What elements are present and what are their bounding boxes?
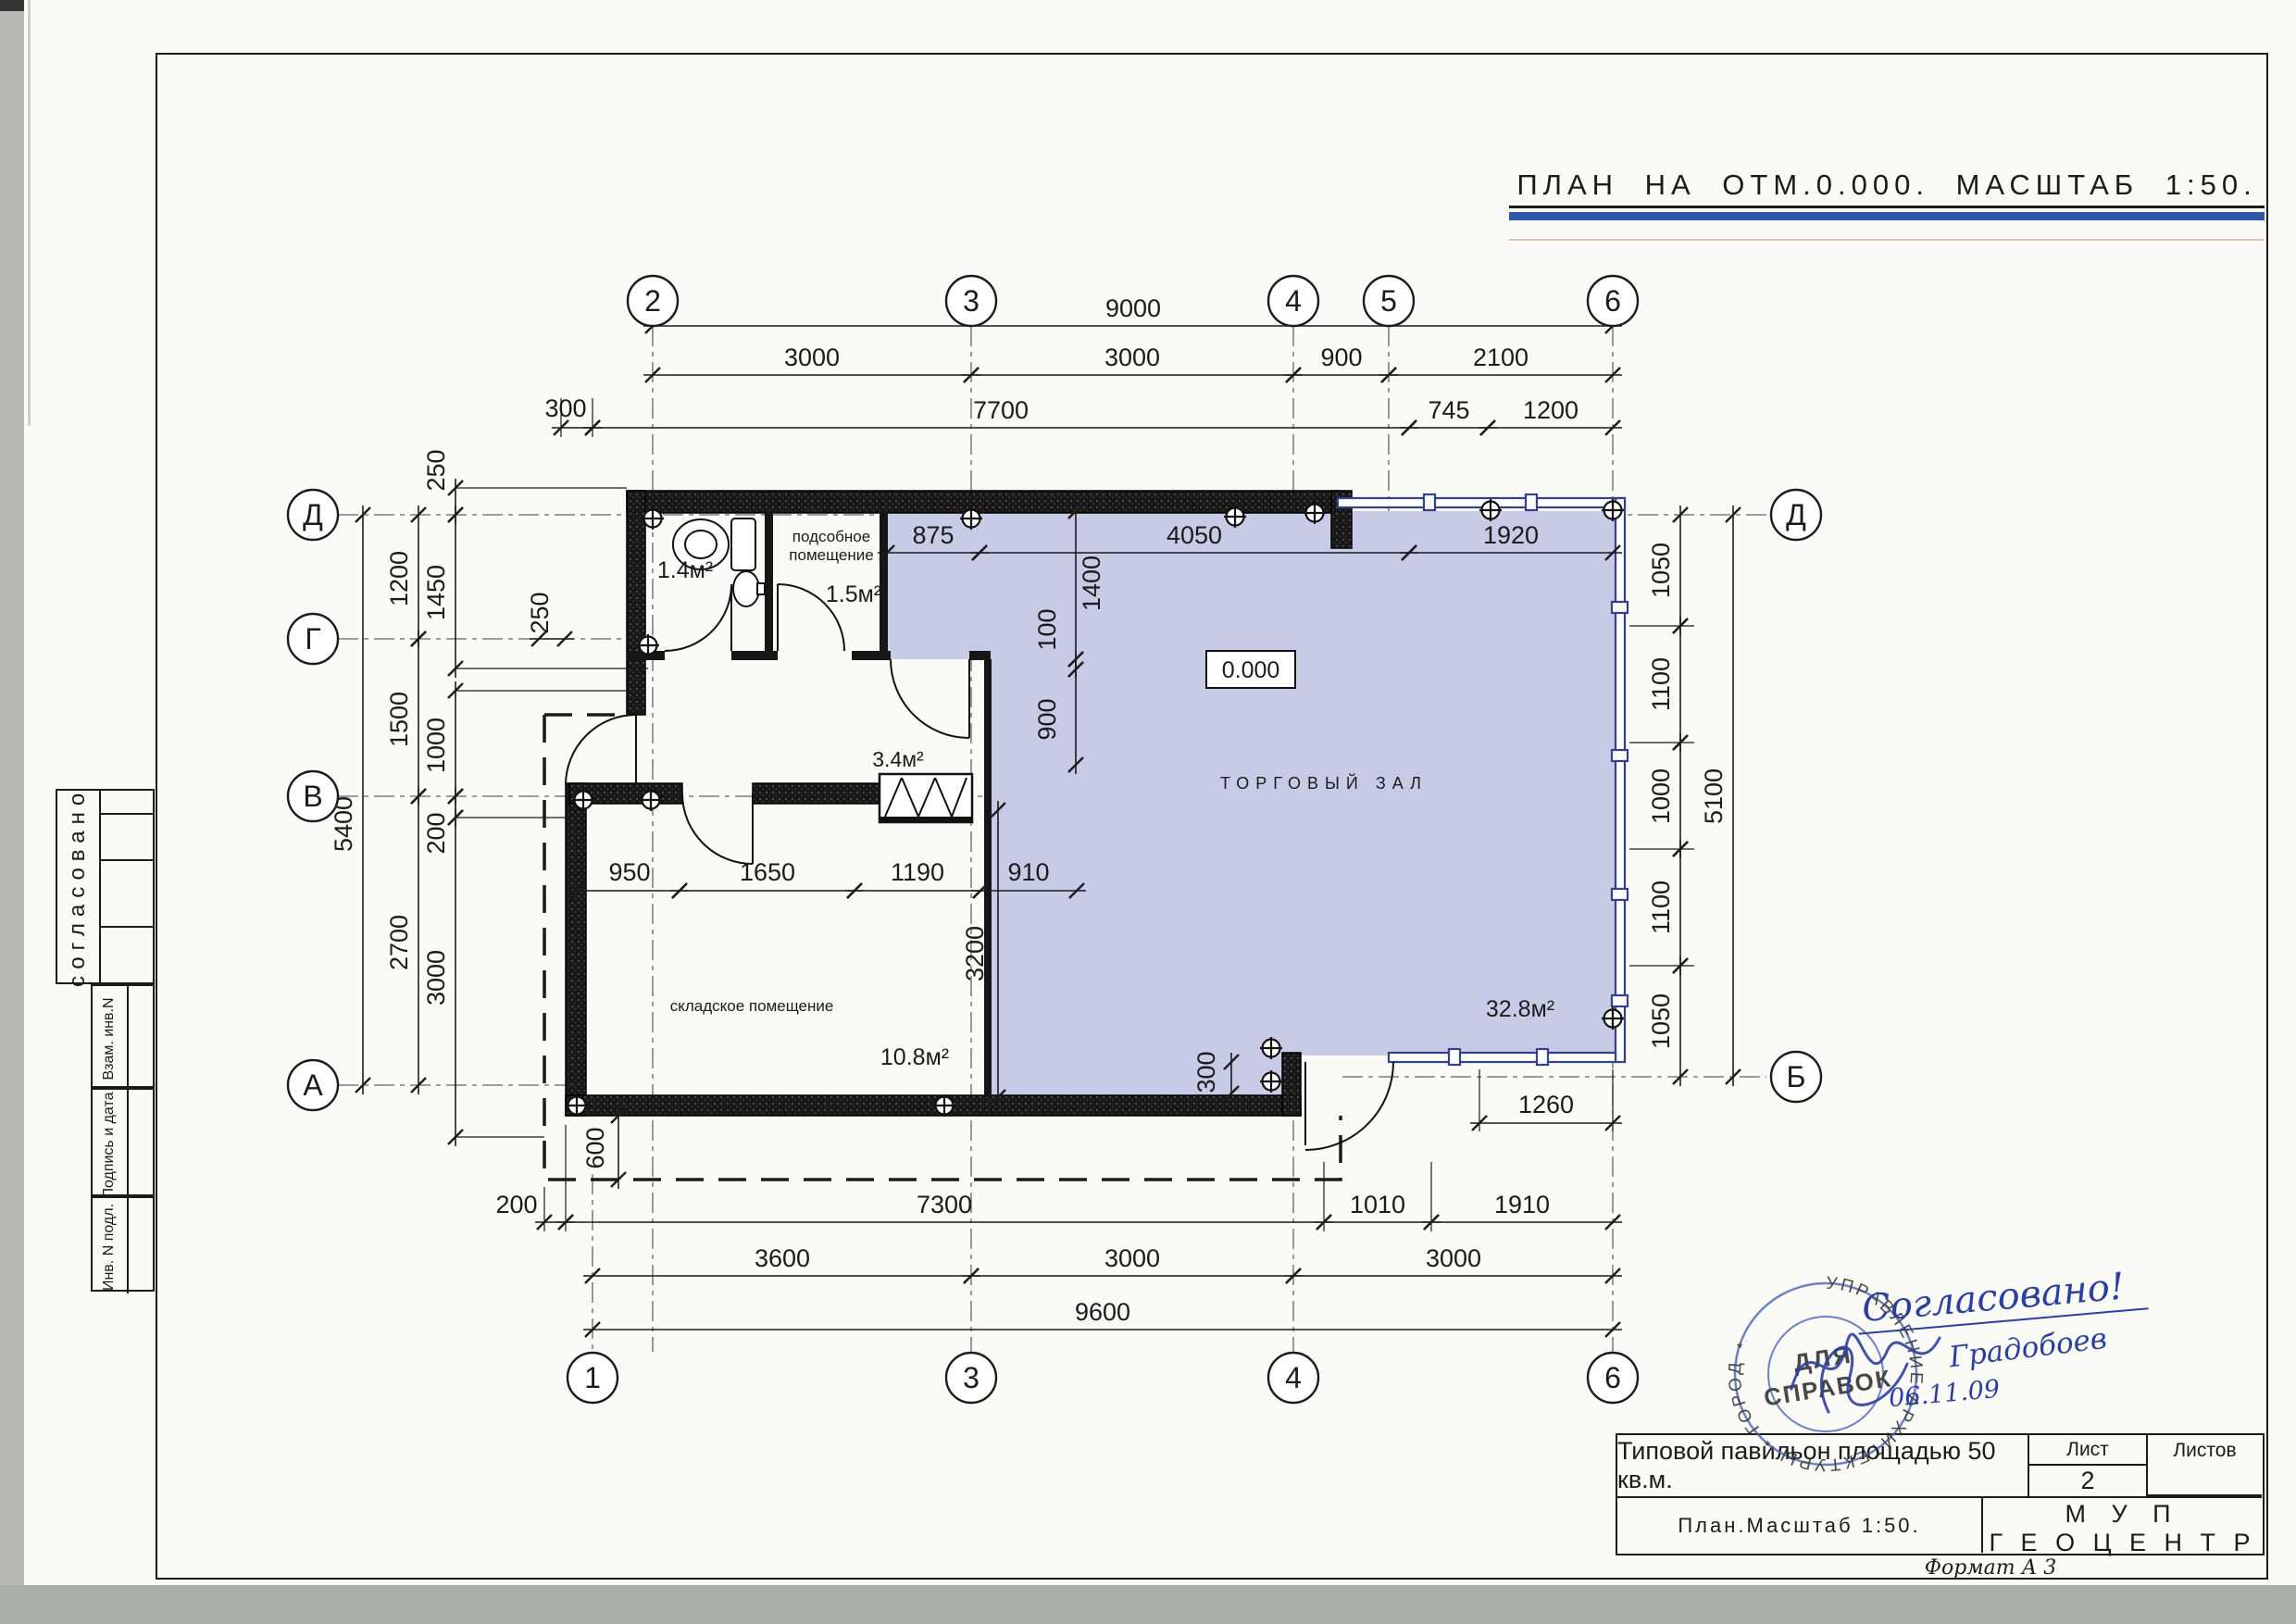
dimension-value: 1100 [1647,657,1675,711]
dimension-value: 600 [581,1127,609,1168]
axis-label: 3 [963,1361,980,1394]
dimension-value: 3000 [784,344,840,371]
shelf-niche [880,774,972,822]
axis-bubble: 6 [1588,276,1638,326]
plan-scale-label: План.Масштаб 1:50. [1678,1514,1920,1538]
axis-label: Г [305,622,320,656]
dimension-value: 1000 [1647,768,1675,824]
room-label: 1.4м² [657,557,713,583]
dimension: 5100 [1700,506,1741,1086]
dimension-value: 1650 [740,858,795,886]
dimension-value: 1000 [422,718,450,773]
sheets-label-cell: Листов [2148,1435,2262,1466]
dimension: 7300 [556,1191,1333,1230]
format-note: Формат А 3 [1889,1556,2092,1580]
dimension: 1000 [1647,733,1688,858]
axis-label: 6 [1604,284,1621,318]
dimension-value: 250 [526,592,554,633]
axis-label: Б [1787,1060,1806,1093]
dimension: 1190 [845,858,990,898]
scanned-sheet: ПЛАН НА ОТМ.0.000. МАСШТАБ 1:50. [0,0,2296,1624]
dimension-value: 875 [912,521,954,549]
sheets-count-cell [2148,1466,2262,1496]
dimension: 9000 [643,294,1622,333]
dimension: 1200 [1479,396,1622,435]
divider [101,926,155,928]
dimension-value: 7700 [973,396,1029,424]
dimension: 3000 [1284,1244,1622,1283]
organization-line2: Г Е О Ц Е Н Т Р [1983,1529,2262,1557]
room-label: 1.5м² [826,581,881,607]
dimension-value: 1050 [1647,543,1675,598]
dimension-value: 200 [495,1191,537,1218]
axis-bubble: 5 [1364,276,1414,326]
dimension-value: 300 [1192,1051,1220,1093]
dimension: 250 [526,592,574,646]
divider [99,791,101,986]
stamp-cell-inv: Инв. N подл. [91,1196,155,1292]
dimension-value: 1200 [385,551,413,606]
axis-bubble: 4 [1268,276,1318,326]
dimension-value: 250 [422,449,450,491]
room-label: ТОРГОВЫЙ ЗАЛ [1220,773,1428,793]
sheet-label: Лист [2066,1439,2109,1461]
dimension: 1100 [1647,617,1688,752]
dimension-value: 9600 [1075,1298,1130,1326]
axis-bubble: Д [1771,490,1821,540]
dimension-value: 1450 [422,565,450,620]
axis-bubble: В [288,771,338,821]
axis-label: А [303,1068,323,1102]
axis-bubble: Г [288,614,338,664]
axis-bubble: Д [288,490,338,540]
dimension-value: 1500 [385,692,413,747]
dimension-value: 9000 [1105,294,1161,322]
dimension-value: 910 [1007,858,1049,886]
dimension: 1450 [422,506,463,678]
dimension: 1200 [385,506,426,648]
dimension: 1100 [1647,840,1688,975]
axis-bubble: 6 [1588,1353,1638,1403]
dimension: 300 [544,394,602,435]
dimension: 950 [569,858,689,898]
dimension-value: 900 [1320,344,1362,371]
divider [127,1198,129,1293]
dimension: 200 [422,787,463,855]
axis-bubble: 2 [628,276,678,326]
axis-label: Д [1786,498,1806,531]
axis-label: 2 [644,284,661,318]
dimension-value: 300 [544,394,586,422]
dimension-value: 2700 [385,915,413,970]
dimension-value: 7300 [917,1191,972,1218]
dimension-value: 2100 [1473,344,1529,371]
dimension: 3000 [962,1244,1303,1283]
divider [127,1090,129,1198]
dimension: 1260 [1470,1091,1622,1131]
dimension: 1650 [670,858,864,898]
dimension-value: 3200 [961,926,989,981]
dimension-value: 1910 [1494,1191,1550,1218]
sheets-label: Листов [2173,1440,2236,1462]
stamp-cell-label: Инв. N подл. [101,1173,118,1321]
dimension-value: 950 [608,858,650,886]
organization-cell: М У П Г Е О Ц Е Н Т Р [1983,1496,2262,1555]
room-label: 0.000 [1222,657,1280,683]
axis-label: 4 [1285,284,1302,318]
dimension: 3600 [583,1244,980,1283]
dimension-value: 1010 [1350,1191,1405,1218]
axis-label: 5 [1380,284,1397,318]
dimension: 3000 [422,808,463,1146]
axis-bubble: А [288,1060,338,1110]
axis-label: Д [303,498,323,531]
dimension-value: 1050 [1647,993,1675,1049]
dimension-value: 5100 [1700,768,1728,824]
dimension: 745 [1400,396,1497,435]
dimension-value: 3000 [1104,344,1160,371]
divider [127,986,129,1090]
axis-bubble: 3 [946,276,996,326]
dimension: 9600 [583,1298,1622,1337]
dimension: 1000 [422,681,463,806]
axis-bubble: 4 [1268,1353,1318,1403]
dimension-value: 1200 [1523,396,1578,424]
dimension: 1050 [1647,506,1688,635]
divider [101,859,155,861]
dimension-value: 1100 [1647,881,1675,934]
axis-label: 6 [1604,1361,1621,1394]
dimension-value: 1260 [1518,1091,1574,1118]
dimension-value: 200 [422,812,450,854]
room-label: помещение [789,546,873,564]
axis-label: 1 [584,1361,601,1394]
room-label: 10.8м² [880,1044,949,1070]
dimension: 1010 [1315,1191,1441,1230]
dimension-value: 900 [1033,698,1061,740]
dimension: 1500 [385,630,426,806]
room-label: 32.8м² [1486,996,1554,1022]
divider [101,813,155,815]
sheet-label-cell: Лист [2029,1435,2148,1466]
signature-scribble [1778,1301,1953,1430]
dimension: 2700 [385,787,426,1094]
dimension-value: 1190 [891,858,944,886]
dimension: 600 [581,1106,626,1189]
dimension-value: 745 [1428,396,1469,424]
room-label: складское помещение [670,997,834,1015]
dimension-value: 1400 [1078,556,1105,611]
dimension-value: 4050 [1167,521,1222,549]
dimension-value: 3000 [1426,1244,1481,1272]
dimension: 1910 [1422,1191,1622,1230]
axis-bubble: Б [1771,1052,1821,1102]
dimension-value: 3600 [755,1244,810,1272]
sink-icon [733,571,765,606]
dimension: 3000 [962,344,1303,382]
approval-strip-label: согласовано [65,802,91,987]
room-label: подсобное [792,528,870,545]
axis-label: 4 [1285,1361,1302,1394]
dimension-value: 3000 [422,950,450,1006]
axis-label: 3 [963,284,980,318]
dimension-value: 3000 [1104,1244,1160,1272]
axis-label: В [303,780,322,813]
dimension-value: 100 [1033,608,1061,650]
dimension: 900 [1284,344,1398,382]
organization-line1: М У П [1983,1500,2262,1529]
sheet-number-cell: 2 [2029,1466,2148,1496]
approval-strip: согласовано [56,789,155,984]
dimension: 2100 [1379,344,1622,382]
sheet-number: 2 [2080,1467,2094,1495]
axis-bubble: 1 [568,1353,618,1403]
room-label: 3.4м² [872,747,924,771]
dimension-value: 1920 [1483,521,1539,549]
axis-bubble: 3 [946,1353,996,1403]
dimension: 3000 [643,344,980,382]
plan-scale-cell: План.Масштаб 1:50. [1617,1496,1983,1553]
dimension: 1050 [1647,956,1688,1086]
